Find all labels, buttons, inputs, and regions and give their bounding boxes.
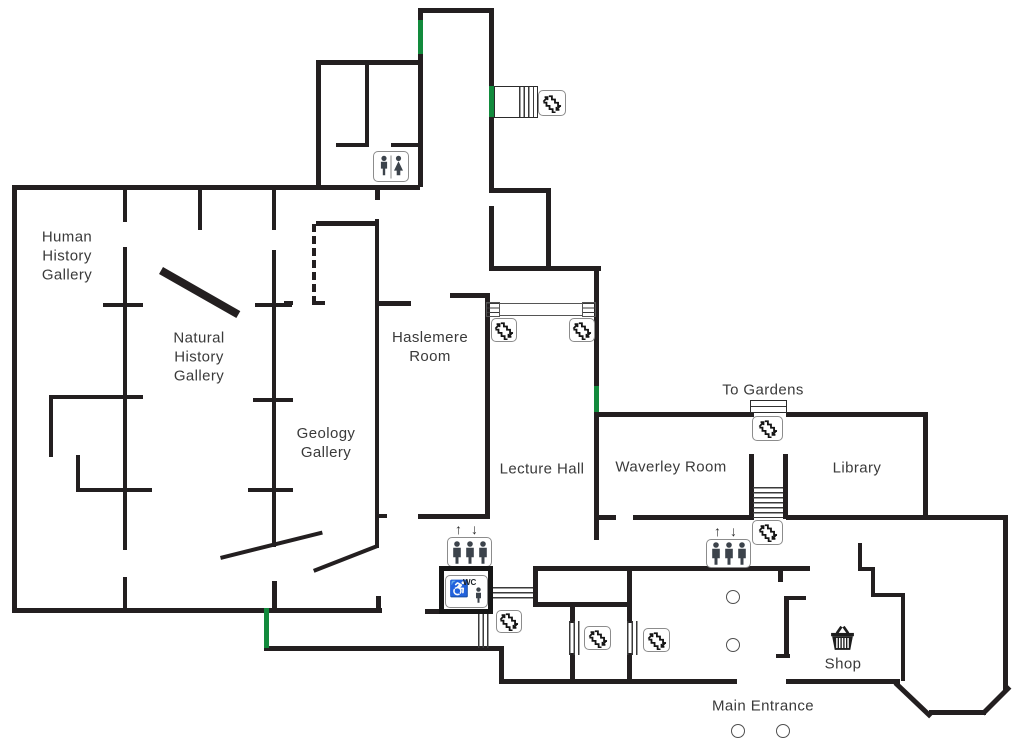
stair-treads bbox=[627, 621, 641, 655]
room-label-shop: Shop bbox=[825, 655, 862, 674]
wall bbox=[12, 185, 420, 190]
column-circle bbox=[776, 724, 790, 738]
stair-treads bbox=[582, 302, 596, 317]
wall bbox=[894, 681, 933, 718]
door-marker bbox=[594, 386, 599, 412]
wall bbox=[489, 8, 494, 88]
wall bbox=[546, 188, 551, 271]
toilets-icon bbox=[373, 151, 409, 182]
lift-icon bbox=[447, 537, 492, 567]
wall bbox=[336, 143, 367, 147]
wall bbox=[786, 679, 900, 684]
wall bbox=[312, 301, 325, 305]
room-label-haslemere-room: Haslemere Room bbox=[392, 328, 468, 366]
wall bbox=[901, 593, 905, 681]
baby-icon bbox=[473, 587, 484, 604]
wc-label: WC bbox=[463, 578, 476, 587]
wall bbox=[248, 488, 293, 492]
door-marker bbox=[418, 20, 423, 54]
wall bbox=[49, 395, 53, 457]
wall bbox=[489, 266, 601, 271]
wall bbox=[778, 566, 783, 582]
wall bbox=[376, 596, 381, 610]
door-marker bbox=[264, 608, 269, 648]
wall bbox=[594, 412, 599, 540]
wall bbox=[450, 293, 487, 298]
wall bbox=[123, 577, 127, 610]
wall bbox=[391, 143, 420, 147]
stairs-icon bbox=[491, 318, 517, 342]
wall bbox=[103, 303, 143, 307]
wall bbox=[316, 221, 379, 226]
wall bbox=[489, 117, 494, 190]
wall bbox=[776, 654, 790, 658]
accessible-wc-icon: ♿ WC bbox=[445, 575, 488, 608]
stair-treads bbox=[750, 400, 787, 413]
wall bbox=[50, 395, 143, 399]
wall bbox=[627, 602, 632, 623]
room-label-natural-history-gallery: Natural History Gallery bbox=[173, 329, 224, 386]
wall bbox=[519, 87, 536, 117]
wall bbox=[570, 602, 575, 623]
wall bbox=[76, 455, 80, 492]
wall bbox=[12, 608, 382, 613]
wall bbox=[627, 653, 632, 682]
room-label-waverley-room: Waverley Room bbox=[615, 458, 726, 477]
wall bbox=[533, 602, 632, 607]
wall bbox=[485, 293, 490, 519]
column-circle bbox=[726, 590, 740, 604]
room-label-human-history-gallery: Human History Gallery bbox=[42, 228, 92, 285]
wall bbox=[313, 544, 379, 573]
lift-direction-arrows: ↑↓ bbox=[714, 523, 746, 539]
wall bbox=[375, 190, 380, 200]
wall bbox=[489, 206, 494, 268]
column-circle bbox=[731, 724, 745, 738]
wall bbox=[375, 301, 411, 306]
wall bbox=[594, 412, 754, 417]
stair-treads bbox=[753, 487, 783, 518]
annotation-main-entrance: Main Entrance bbox=[712, 697, 814, 716]
stair-treads bbox=[494, 86, 538, 118]
room-label-lecture-hall: Lecture Hall bbox=[500, 460, 585, 479]
wall bbox=[377, 514, 387, 518]
wall bbox=[499, 679, 737, 684]
wall bbox=[981, 685, 1011, 715]
column-circle bbox=[726, 638, 740, 652]
wall bbox=[633, 515, 754, 520]
stair-treads bbox=[486, 302, 500, 317]
stairs-icon bbox=[752, 520, 783, 545]
wall bbox=[78, 488, 152, 492]
room-label-geology-gallery: Geology Gallery bbox=[297, 424, 356, 462]
shopping-basket-icon bbox=[828, 624, 857, 652]
wall bbox=[533, 566, 810, 571]
wall bbox=[418, 514, 487, 519]
stairs-icon bbox=[496, 610, 522, 633]
stairs-icon bbox=[538, 90, 566, 116]
wall bbox=[783, 454, 788, 519]
stair-treads bbox=[493, 587, 533, 602]
wall bbox=[253, 398, 293, 402]
wall bbox=[1003, 515, 1008, 692]
wall bbox=[284, 301, 293, 305]
wall bbox=[570, 653, 575, 682]
wall bbox=[500, 303, 582, 316]
lift-icon bbox=[706, 539, 751, 568]
stairs-icon bbox=[752, 416, 783, 441]
wall bbox=[489, 188, 551, 193]
wall bbox=[871, 593, 905, 597]
wall bbox=[786, 515, 1008, 520]
stair-treads bbox=[569, 621, 583, 655]
wall bbox=[272, 581, 277, 613]
stair-treads bbox=[478, 611, 491, 648]
room-label-library: Library bbox=[833, 459, 882, 478]
wall bbox=[264, 646, 504, 651]
wall bbox=[923, 412, 928, 520]
lift-direction-arrows: ↑↓ bbox=[455, 521, 487, 537]
wall bbox=[786, 412, 928, 417]
annotation-to-gardens: To Gardens bbox=[722, 381, 804, 400]
wall bbox=[365, 62, 369, 147]
stairs-icon bbox=[584, 626, 611, 650]
wall bbox=[316, 60, 321, 187]
dashed-partition bbox=[312, 224, 316, 304]
wall bbox=[784, 596, 789, 658]
museum-floor-plan: ↑↓ ↑↓ ♿ WC bbox=[0, 0, 1020, 745]
wall bbox=[123, 185, 127, 222]
wall bbox=[198, 185, 202, 230]
wall bbox=[375, 219, 379, 548]
wall bbox=[929, 710, 986, 715]
wall bbox=[627, 566, 632, 607]
wall bbox=[784, 596, 806, 600]
wall bbox=[272, 185, 276, 230]
wall bbox=[12, 185, 17, 613]
stairs-icon bbox=[569, 318, 595, 342]
stairs-icon bbox=[643, 628, 670, 652]
wall bbox=[533, 566, 538, 607]
exhibit-case bbox=[159, 267, 240, 318]
wall bbox=[418, 8, 494, 13]
